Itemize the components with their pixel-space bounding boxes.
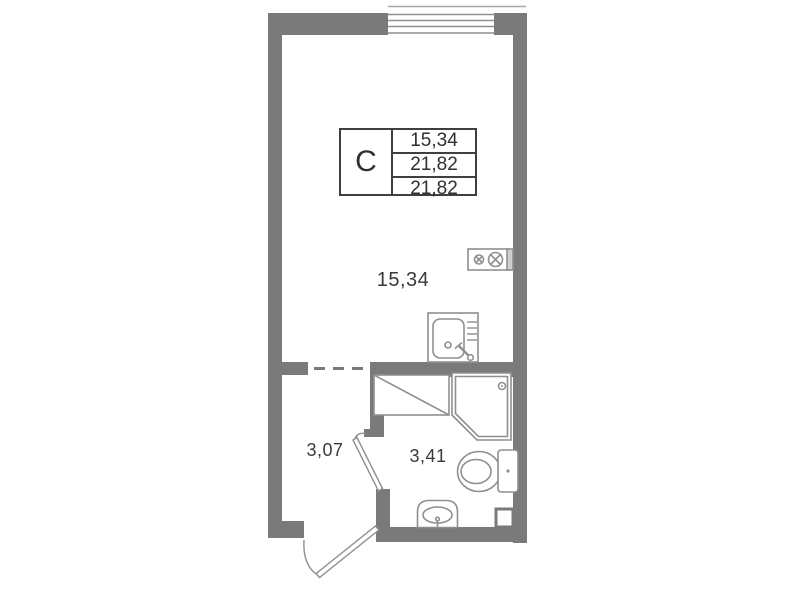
legend-apartment-type: С — [341, 130, 393, 194]
entrance-door — [304, 526, 379, 578]
toilet-icon — [458, 450, 519, 492]
wall-hallway-bottom-stub — [282, 521, 304, 538]
wall-left — [268, 13, 282, 538]
niche-diagonal — [374, 375, 449, 415]
shower-cabin-icon — [452, 373, 511, 440]
bathroom-door — [353, 433, 383, 491]
legend-values: 15,34 21,82 21,82 — [393, 130, 475, 194]
wall-bathroom-door-jamb — [364, 429, 384, 437]
legend-living-area: 15,34 — [393, 130, 475, 154]
stove-icon — [468, 249, 513, 270]
living-room-area-label: 15,34 — [375, 269, 431, 292]
wall-top-left — [268, 13, 388, 35]
bathroom-area-label: 3,41 — [402, 446, 454, 467]
hallway-area-label: 3,07 — [299, 440, 351, 461]
wall-bathroom-bottom — [376, 527, 527, 542]
vent-duct — [496, 509, 513, 527]
floor-plan-drawing — [0, 0, 799, 600]
legend-overall-area: 21,82 — [393, 178, 475, 200]
wall-stub-left — [282, 362, 308, 375]
floor-plan-canvas: 15,34 3,07 3,41 С 15,34 21,82 21,82 — [0, 0, 799, 600]
washbasin-icon — [418, 501, 458, 528]
legend-total-area: 21,82 — [393, 154, 475, 178]
legend-table: С 15,34 21,82 21,82 — [339, 128, 477, 196]
wall-bathroom-west-lower — [376, 489, 390, 529]
kitchen-sink-icon — [428, 313, 478, 362]
